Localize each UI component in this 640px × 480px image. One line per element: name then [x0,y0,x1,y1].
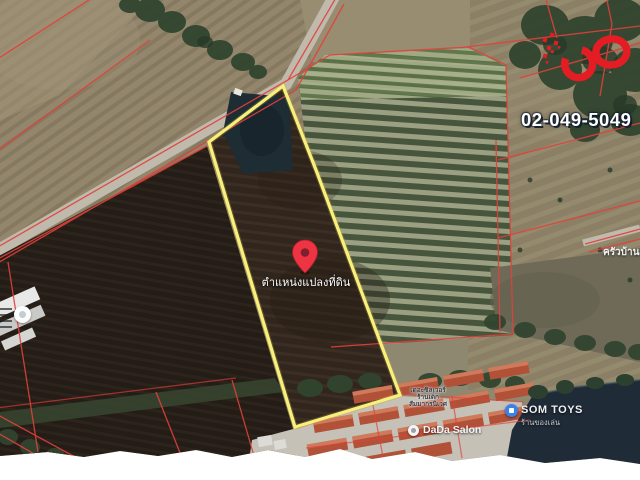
poi-som-toys[interactable]: SOM TOYS ร้านของเล่น [505,404,583,429]
poi-dada-salon-title: DaDa Salon [423,424,481,436]
poi-krua-baan[interactable]: ครัวบ้าน [603,245,639,260]
shop-icon[interactable] [505,404,518,417]
infinity-logo [534,24,640,96]
poi-som-toys-title: SOM TOYS [521,404,583,416]
salon-icon[interactable] [408,425,419,436]
village-label-line3: สัมมากรนิเวศ [394,401,462,408]
business-poi-icon[interactable] [14,306,31,323]
poi-village-label[interactable]: เดอะซิลเวอร์ ร้านเด็ก สัมมากรนิเวศ [394,387,462,408]
illegible-poi-text [0,307,12,328]
village-label-line2: ร้านเด็ก [394,394,462,401]
logo-dots [542,32,560,63]
pin-label: ตำแหน่งแปลงที่ดิน [258,273,354,291]
poi-som-toys-subtitle: ร้านของเล่น [521,417,583,429]
poi-dada-salon[interactable]: DaDa Salon [408,424,481,436]
village-label-line1: เดอะซิลเวอร์ [394,387,462,394]
satellite-map-screenshot: ตำแหน่งแปลงที่ดิน SOM TOYS ร้านของเล่น D… [0,0,640,480]
phone-number: 02-049-5049 [521,109,631,131]
